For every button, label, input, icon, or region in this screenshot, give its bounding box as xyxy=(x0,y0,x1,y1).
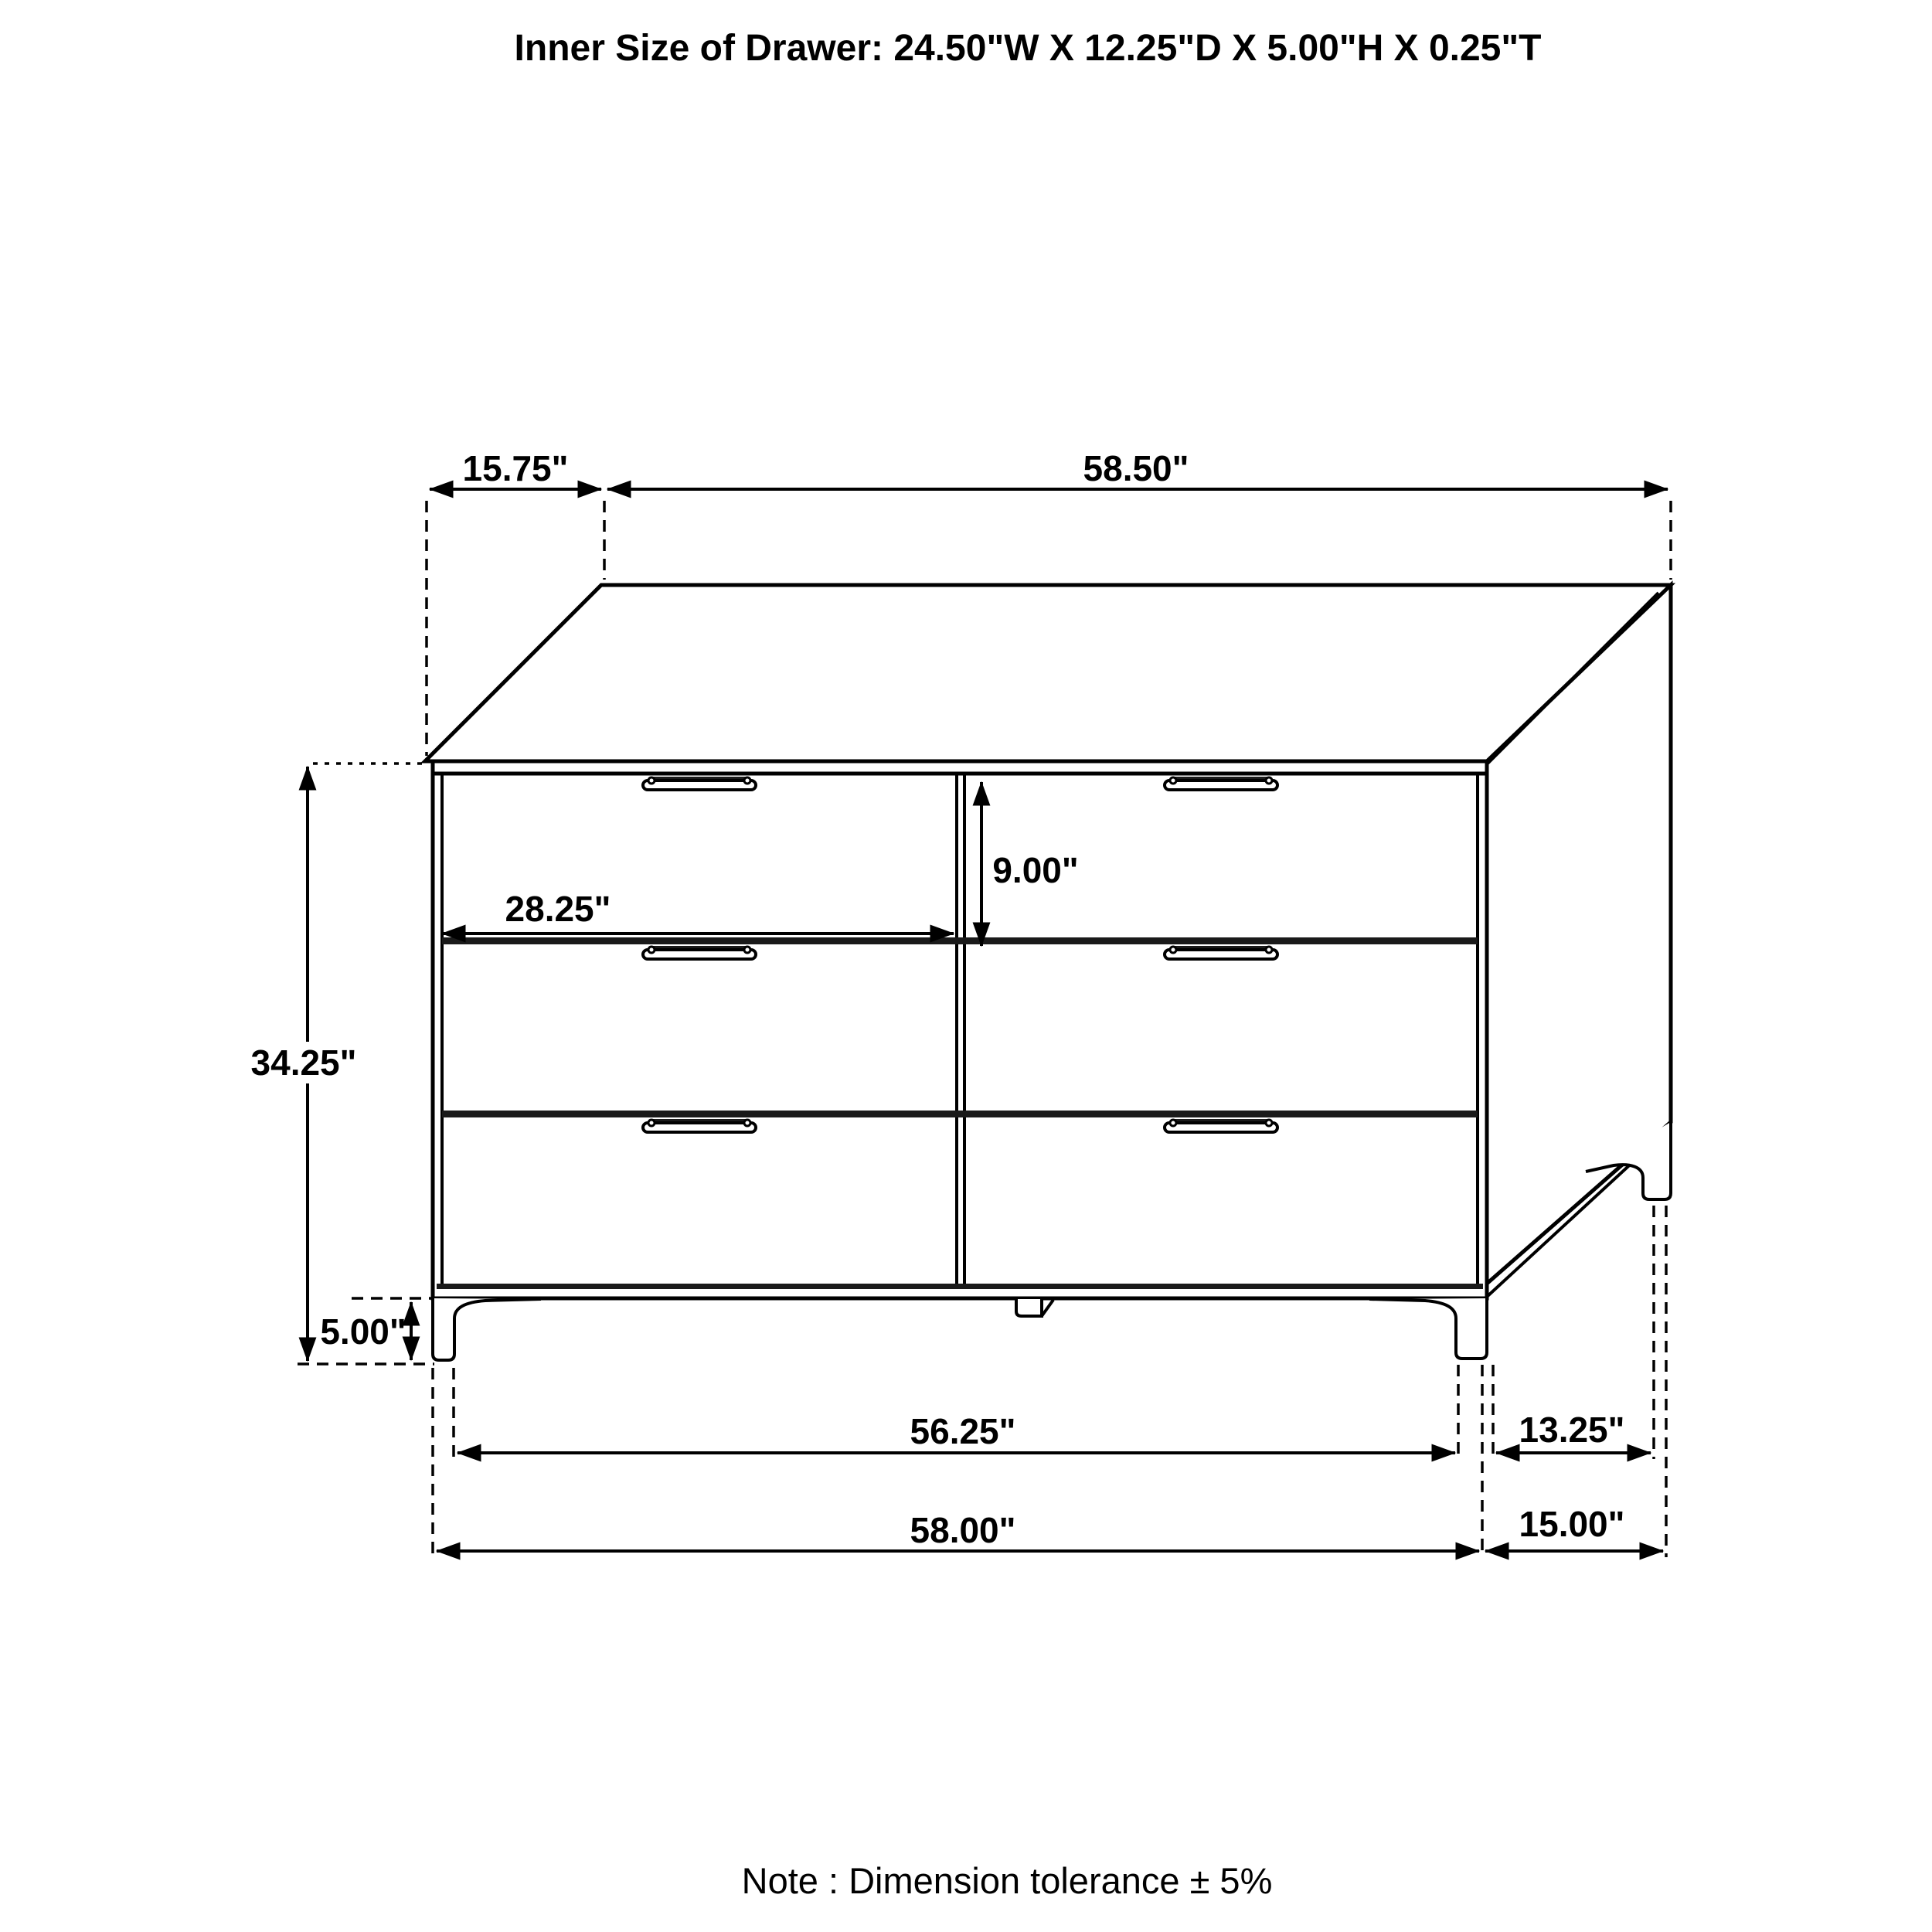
dim-label-top-depth-offset: 15.75" xyxy=(463,448,569,488)
dresser-front-face xyxy=(433,761,1487,1298)
drawer-handle xyxy=(1165,946,1277,959)
drawer-handle xyxy=(643,946,756,959)
page-title: Inner Size of Drawer: 24.50"W X 12.25"D … xyxy=(515,28,1542,69)
tolerance-note: Note : Dimension tolerance ± 5% xyxy=(742,1860,1273,1901)
drawer-handle xyxy=(1165,777,1277,790)
dim-label-drawer-height: 9.00" xyxy=(992,850,1078,890)
dim-label-base-depth: 15.00" xyxy=(1519,1504,1625,1544)
bottom-rail-band xyxy=(437,1284,1483,1289)
middle-foot xyxy=(1016,1299,1042,1316)
dresser-dimension-diagram: Inner Size of Drawer: 24.50"W X 12.25"D … xyxy=(0,0,1932,1932)
row-divider-2 xyxy=(442,1111,1478,1117)
dim-label-feet-span-depth: 13.25" xyxy=(1519,1410,1625,1450)
dim-label-drawer-width: 28.25" xyxy=(505,889,611,929)
dim-label-leg-height: 5.00" xyxy=(320,1311,406,1352)
drawer-handle xyxy=(643,1119,756,1132)
drawer-handle xyxy=(1165,1119,1277,1132)
dresser-top-face xyxy=(425,585,1671,761)
dim-label-overall-height: 34.25" xyxy=(251,1043,357,1083)
dim-label-top-width: 58.50" xyxy=(1083,448,1189,488)
dim-label-base-width: 58.00" xyxy=(910,1510,1016,1550)
drawer-handle xyxy=(643,777,756,790)
row-divider-1 xyxy=(442,937,1478,944)
dim-label-feet-span-width: 56.25" xyxy=(910,1411,1016,1451)
